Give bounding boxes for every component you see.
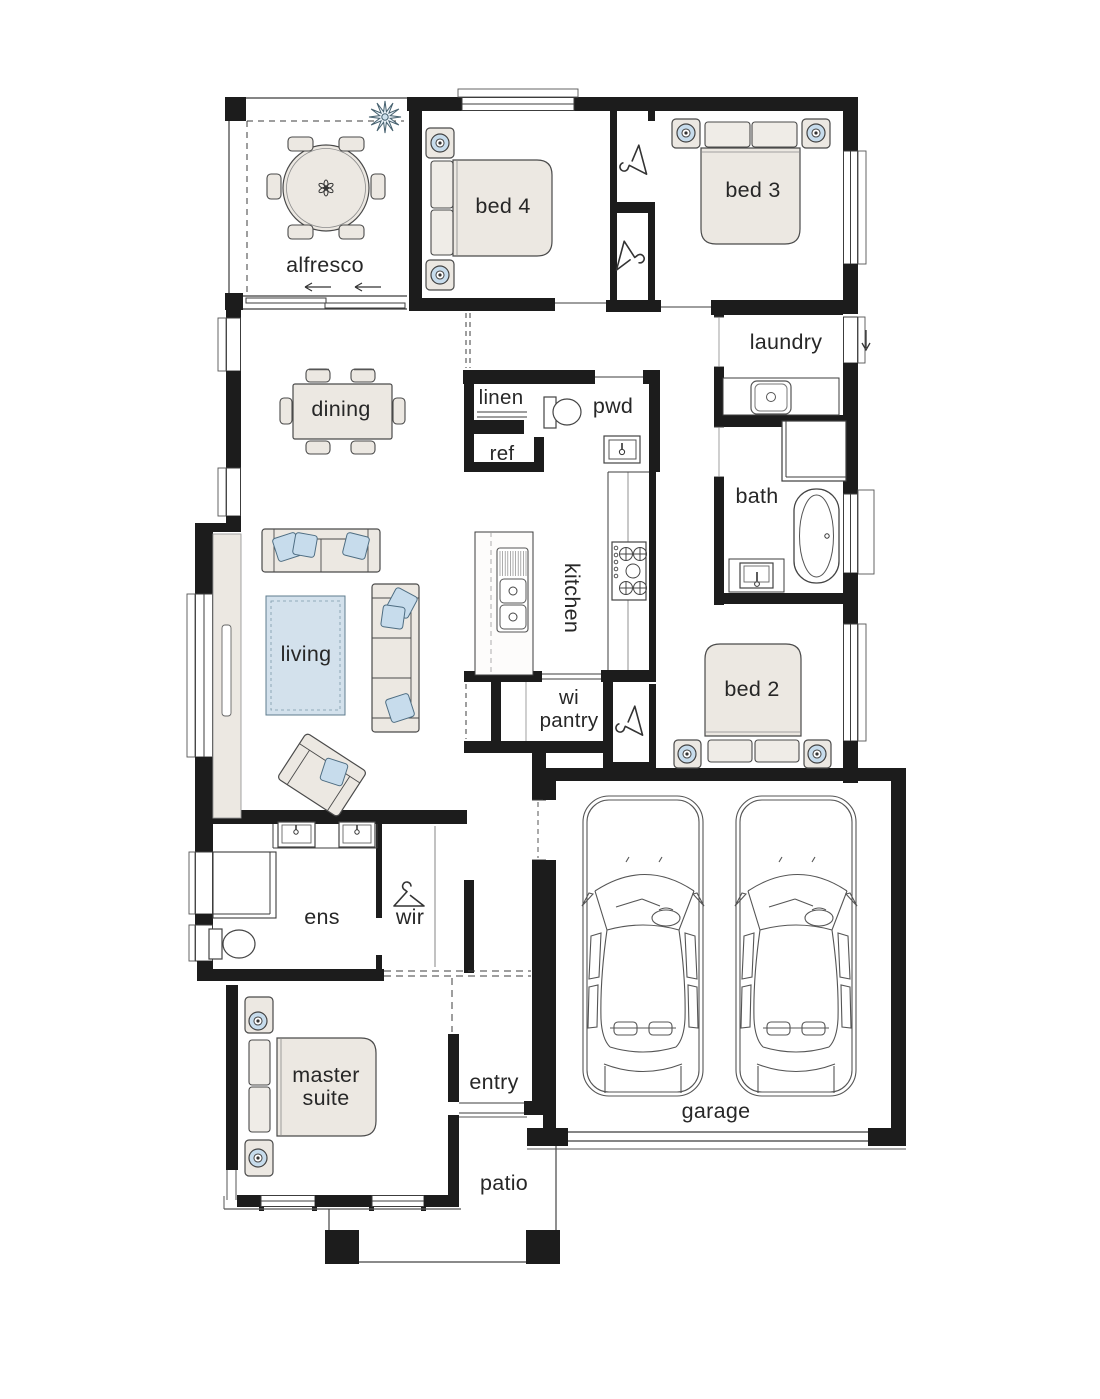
svg-text:alfresco: alfresco [286,253,364,277]
svg-text:laundry: laundry [750,330,823,354]
svg-text:bath: bath [735,484,778,508]
svg-text:ens: ens [304,905,340,929]
svg-text:linen: linen [479,386,524,409]
svg-text:living: living [281,642,332,666]
svg-text:wi: wi [558,686,579,709]
svg-text:entry: entry [469,1070,518,1094]
svg-text:patio: patio [480,1171,528,1195]
svg-text:ref: ref [490,442,515,465]
svg-text:suite: suite [303,1086,350,1110]
svg-text:bed 4: bed 4 [475,194,530,218]
svg-text:pwd: pwd [593,394,633,418]
svg-text:master: master [292,1063,360,1087]
svg-text:garage: garage [682,1099,751,1123]
svg-text:wir: wir [395,905,424,929]
svg-text:bed 3: bed 3 [725,178,780,202]
svg-text:kitchen: kitchen [560,563,584,633]
svg-text:bed 2: bed 2 [724,677,779,701]
svg-text:pantry: pantry [540,709,599,732]
svg-text:dining: dining [311,397,370,421]
